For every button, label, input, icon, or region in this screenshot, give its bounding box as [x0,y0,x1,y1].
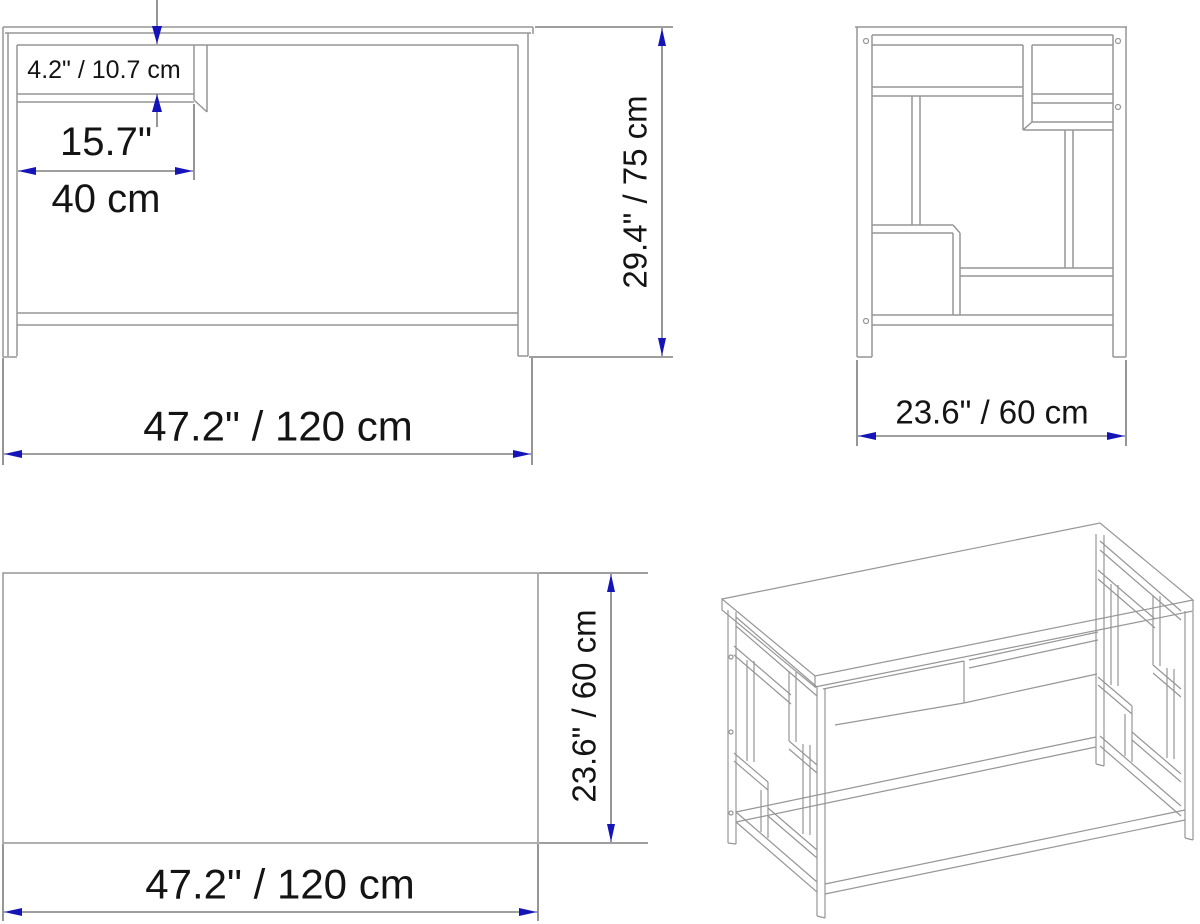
front-width-label: 47.2" / 120 cm [143,403,412,450]
screw-hole-icon [1116,39,1121,44]
top-depth-dimension: 23.6" / 60 cm [539,573,648,843]
front-shelf-width-cm-label: 40 cm [52,177,161,221]
arrow-up-icon [607,574,615,592]
front-height-label: 29.4" / 75 cm [617,95,654,288]
iso-left-panel-frame [734,617,817,892]
front-shelf-gap-dimension: 4.2" / 10.7 cm [27,0,180,127]
arrow-right-icon [1107,432,1125,440]
screw-hole-icon [729,655,733,659]
front-shelf-gap-label: 4.2" / 10.7 cm [27,56,180,84]
screw-hole-icon [729,730,733,734]
side-view-outline [855,27,1127,357]
front-shelf-width-dimension: 15.7" 40 cm [18,104,194,221]
drawing-canvas: 4.2" / 10.7 cm 15.7" 40 cm 29.4" / 75 cm… [0,0,1200,924]
top-depth-label: 23.6" / 60 cm [566,609,603,802]
top-view-outline [3,573,538,843]
screw-hole-icon [864,39,869,44]
front-width-dimension: 47.2" / 120 cm [3,358,532,465]
isometric-view [722,523,1193,918]
front-height-dimension: 29.4" / 75 cm [529,27,673,357]
top-view: 23.6" / 60 cm 47.2" / 120 cm [3,573,648,921]
screw-hole-icon [729,811,733,815]
side-depth-label: 23.6" / 60 cm [895,394,1088,431]
iso-under-top-shelf [823,632,1098,725]
arrow-right-icon [519,908,537,916]
screw-hole-icon [864,319,869,324]
arrow-right-icon [513,450,531,458]
front-view: 4.2" / 10.7 cm 15.7" 40 cm 29.4" / 75 cm… [3,0,673,465]
arrow-down-icon [607,824,615,842]
screw-hole-icon [1116,105,1121,110]
front-shelf-width-inches-label: 15.7" [60,120,152,164]
side-depth-dimension: 23.6" / 60 cm [857,360,1126,446]
arrow-down-icon [152,26,162,44]
top-width-label: 47.2" / 120 cm [145,861,414,908]
desk-dimension-diagram: 4.2" / 10.7 cm 15.7" 40 cm 29.4" / 75 cm… [0,0,1200,924]
side-view: 23.6" / 60 cm [855,27,1127,446]
top-width-dimension: 47.2" / 120 cm [3,844,538,921]
arrow-left-icon [4,908,22,916]
arrow-up-icon [152,94,162,112]
arrow-left-icon [18,167,36,175]
arrow-right-icon [175,167,193,175]
arrow-left-icon [858,432,876,440]
arrow-left-icon [4,450,22,458]
iso-right-panel-frame [1098,541,1181,816]
arrow-down-icon [658,338,666,356]
arrow-up-icon [658,28,666,46]
